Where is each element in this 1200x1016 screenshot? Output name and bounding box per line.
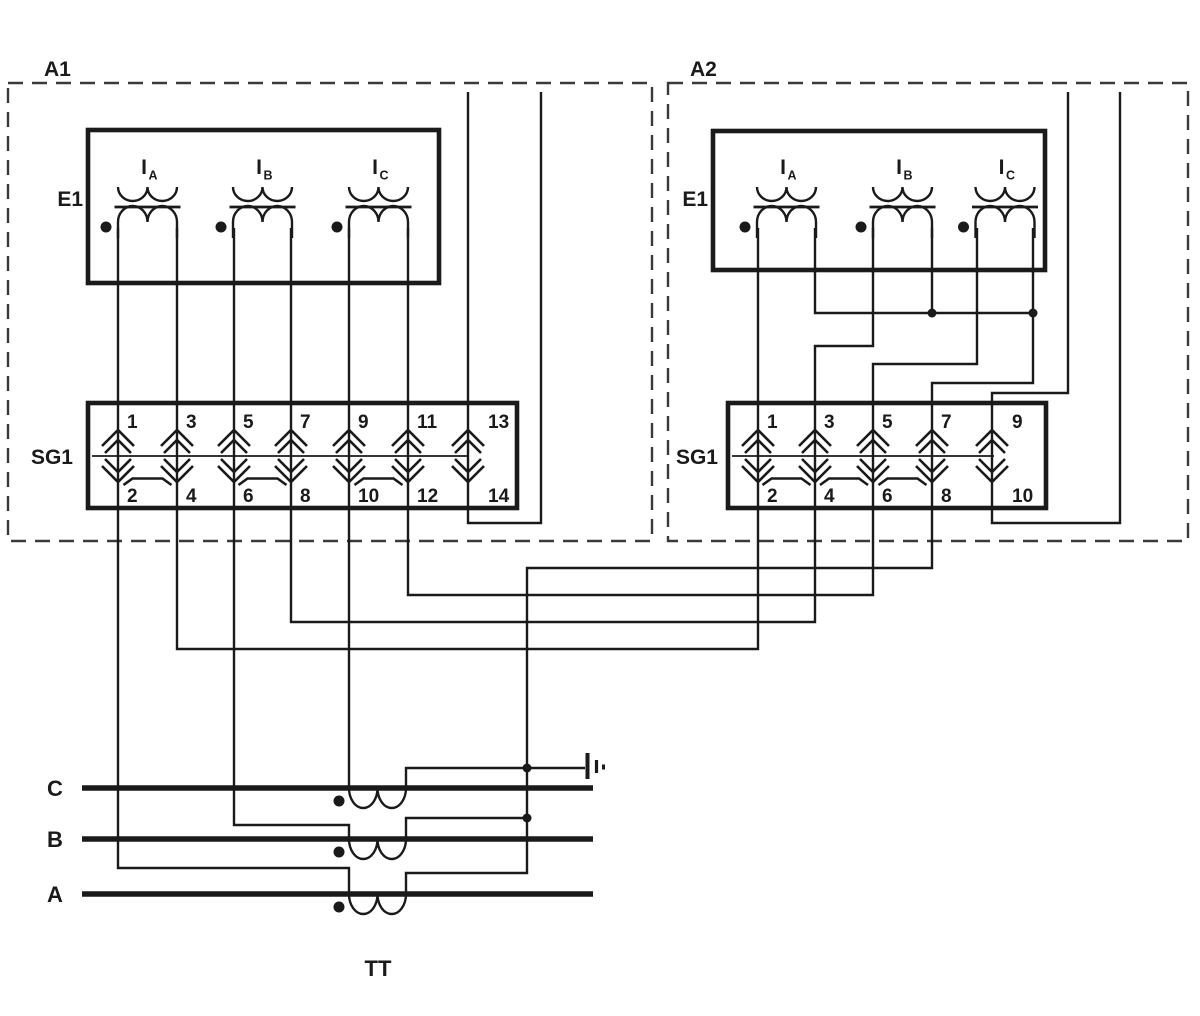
link-bracket-icon	[239, 479, 287, 486]
block-a1-outline	[8, 83, 652, 541]
block-a2-label: A2	[690, 58, 717, 81]
terminal-number: 9	[1012, 412, 1023, 433]
wire-tt-b-to-common	[406, 818, 527, 839]
test-block-sg1-a1: SG1 1 3 5 7 9 11 13 2 4 6 8 10 12 14	[31, 403, 517, 508]
terminal-number: 13	[488, 412, 509, 433]
terminal-number: 7	[941, 412, 952, 433]
terminal-number: 1	[767, 412, 778, 433]
coil-label-ia-sub: A	[788, 169, 797, 183]
terminal-number: 2	[127, 486, 138, 507]
current-coil-icon	[101, 187, 181, 238]
terminal-number: 1	[127, 412, 138, 433]
terminal-number: 12	[417, 486, 438, 507]
terminal-number: 14	[488, 486, 510, 507]
phase-label-b: B	[47, 827, 63, 852]
link-bracket-icon	[879, 479, 927, 486]
coil-label-ic-sub: C	[1006, 169, 1015, 183]
ct-secondary-icon	[334, 788, 407, 808]
wiring	[118, 92, 1120, 894]
wire-a2t9-t10-stubs	[992, 92, 1120, 523]
terminal-number: 11	[417, 412, 438, 433]
terminal-number: 4	[824, 486, 835, 507]
terminal-number: 8	[941, 486, 952, 507]
wire-a2-common-return	[406, 228, 1033, 894]
terminal-number: 10	[358, 486, 379, 507]
wire-tt-c-to-ground	[406, 768, 585, 788]
terminal-number: 5	[243, 412, 254, 433]
ct-secondary-icon	[334, 894, 407, 914]
coil-label-ib-main: I	[896, 156, 902, 179]
test-block-sg1-a2: SG1 1 3 5 7 9 2 4 6 8 10	[676, 403, 1046, 508]
coil-label-ic: I	[999, 156, 1005, 179]
current-coil-icon	[856, 187, 936, 238]
coil-label-ia: I	[141, 156, 147, 179]
terminal-number: 3	[824, 412, 835, 433]
test-block-label: SG1	[31, 446, 73, 469]
wire-a1t13-t14-stubs	[468, 92, 541, 523]
meter-label: E1	[682, 188, 708, 211]
coil-label-ia-sub: A	[149, 169, 158, 183]
terminal-number: 9	[358, 412, 369, 433]
link-bracket-icon	[763, 479, 811, 486]
wiring-diagram: A1 A2 E1 I A I B	[0, 0, 1200, 1016]
coil-label-ic-sub: C	[380, 169, 389, 183]
schematic-page: A1 A2 E1 I A I B	[0, 0, 1200, 1016]
junction-dot	[523, 814, 532, 823]
coil-label-ib-sub: B	[264, 169, 273, 183]
current-coil-icon	[740, 187, 820, 238]
terminal-number: 3	[186, 412, 197, 433]
current-coil-icon	[332, 187, 412, 238]
wire-a1t8-a2t4	[291, 228, 873, 622]
terminal-number: 5	[882, 412, 893, 433]
terminal-number: 4	[186, 486, 197, 507]
phase-label-a: A	[47, 882, 63, 907]
phase-label-c: C	[47, 776, 63, 801]
meter-label: E1	[57, 188, 83, 211]
transformer-tt: C B A TT	[47, 776, 593, 981]
terminal-number: 8	[300, 486, 311, 507]
current-coil-icon	[958, 187, 1038, 238]
terminal-number: 7	[300, 412, 311, 433]
terminal-number: 10	[1012, 486, 1033, 507]
link-bracket-icon	[820, 479, 868, 486]
meter-e1-a1: E1 I A I B I C	[57, 130, 439, 283]
transformer-label: TT	[365, 956, 392, 981]
block-a1-label: A1	[44, 58, 71, 81]
terminal-number: 2	[767, 486, 778, 507]
meter-e1-a2: E1 I A B I B I C	[682, 131, 1045, 270]
link-bracket-icon	[124, 479, 172, 486]
terminal-number: 6	[882, 486, 893, 507]
terminal-number: 6	[243, 486, 254, 507]
link-bracket-icon	[355, 479, 403, 486]
junction-dot	[928, 309, 937, 318]
test-block-label: SG1	[676, 446, 718, 469]
ct-secondary-icon	[334, 839, 407, 859]
current-coil-icon	[216, 187, 296, 238]
coil-label-ib-sub: B	[904, 169, 913, 183]
junction-dot	[1029, 309, 1038, 318]
coil-label-ia: I	[780, 156, 786, 179]
junction-dot	[523, 764, 532, 773]
ground-icon	[588, 753, 604, 779]
coil-label-ib: I	[256, 156, 262, 179]
coil-label-ic: I	[372, 156, 378, 179]
